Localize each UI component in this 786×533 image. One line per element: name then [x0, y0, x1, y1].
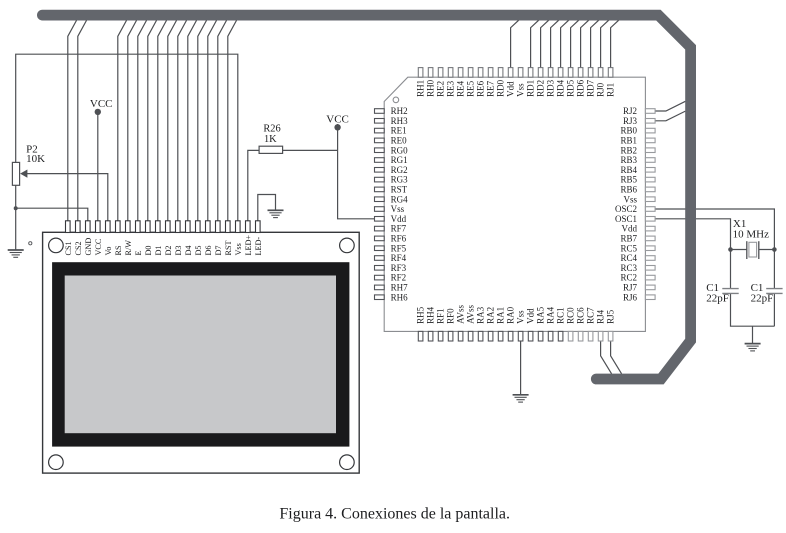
svg-text:Vdd: Vdd [526, 308, 536, 324]
svg-text:RE6: RE6 [476, 80, 486, 97]
svg-text:RB7: RB7 [620, 234, 637, 244]
svg-text:RD0: RD0 [496, 79, 506, 97]
svg-text:Vo: Vo [104, 247, 113, 256]
svg-text:R26: R26 [263, 124, 280, 135]
svg-text:RG2: RG2 [391, 165, 408, 175]
svg-text:RD7: RD7 [586, 79, 596, 97]
svg-text:RA0: RA0 [506, 306, 516, 324]
svg-text:RH3: RH3 [391, 116, 409, 126]
svg-text:RC4: RC4 [620, 253, 637, 263]
svg-text:RD4: RD4 [556, 79, 566, 97]
svg-text:Vdd: Vdd [391, 214, 407, 224]
svg-text:RF2: RF2 [391, 273, 407, 283]
svg-text:D5: D5 [194, 245, 203, 255]
svg-text:RH6: RH6 [391, 292, 409, 302]
svg-text:RB1: RB1 [620, 136, 637, 146]
svg-text:RS: RS [114, 245, 123, 255]
svg-text:RD3: RD3 [546, 79, 556, 97]
svg-text:GND: GND [84, 238, 93, 256]
svg-text:RH5: RH5 [416, 306, 426, 324]
svg-text:RE4: RE4 [456, 80, 466, 97]
svg-text:Vss: Vss [623, 194, 637, 204]
svg-text:D3: D3 [174, 245, 183, 255]
svg-text:RST: RST [224, 240, 233, 255]
svg-text:D2: D2 [164, 245, 173, 255]
svg-text:RG1: RG1 [391, 155, 408, 165]
svg-text:RE1: RE1 [391, 126, 407, 136]
svg-text:RD5: RD5 [566, 79, 576, 97]
svg-text:RJ6: RJ6 [623, 292, 638, 302]
svg-text:VCC: VCC [90, 98, 113, 110]
svg-text:Vss: Vss [234, 243, 243, 255]
svg-text:RF6: RF6 [391, 234, 407, 244]
svg-text:RJ0: RJ0 [596, 82, 606, 97]
svg-text:LED-: LED- [254, 237, 263, 256]
svg-text:OSC1: OSC1 [615, 214, 637, 224]
svg-text:10K: 10K [26, 153, 45, 165]
svg-text:RB6: RB6 [620, 185, 637, 195]
svg-text:Vss: Vss [391, 204, 405, 214]
svg-text:Figura 4. Conexiones de la pan: Figura 4. Conexiones de la pantalla. [279, 506, 510, 523]
svg-text:RJ5: RJ5 [606, 309, 616, 324]
svg-text:1K: 1K [264, 134, 277, 145]
svg-text:RST: RST [391, 185, 408, 195]
svg-text:RE0: RE0 [391, 136, 408, 146]
svg-text:RC1: RC1 [556, 307, 566, 324]
svg-text:RE3: RE3 [446, 80, 456, 97]
svg-text:OSC2: OSC2 [615, 204, 637, 214]
svg-text:RJ4: RJ4 [596, 309, 606, 324]
svg-text:Vdd: Vdd [506, 81, 516, 97]
svg-text:VCC: VCC [326, 114, 349, 126]
svg-text:D7: D7 [214, 245, 223, 255]
svg-text:Vss: Vss [516, 83, 526, 97]
svg-text:22pF: 22pF [751, 292, 774, 304]
svg-text:RD1: RD1 [526, 80, 536, 97]
svg-text:RC2: RC2 [620, 273, 637, 283]
svg-text:RC0: RC0 [566, 307, 576, 324]
svg-text:D0: D0 [144, 245, 153, 255]
svg-text:RB0: RB0 [620, 126, 637, 136]
svg-text:RA5: RA5 [536, 306, 546, 324]
svg-text:22pF: 22pF [706, 292, 729, 304]
svg-text:RF0: RF0 [446, 308, 456, 324]
svg-text:RJ7: RJ7 [623, 283, 638, 293]
svg-text:RH2: RH2 [391, 106, 408, 116]
svg-text:D1: D1 [154, 245, 163, 255]
svg-text:D4: D4 [184, 245, 193, 255]
svg-text:RE2: RE2 [436, 81, 446, 97]
svg-text:RE5: RE5 [466, 80, 476, 97]
svg-text:VCC: VCC [94, 238, 103, 255]
svg-text:E: E [134, 250, 143, 255]
svg-text:RB2: RB2 [620, 145, 637, 155]
svg-text:RA1: RA1 [496, 307, 506, 324]
svg-text:RA3: RA3 [476, 306, 486, 324]
svg-text:RF7: RF7 [391, 224, 407, 234]
svg-text:RJ3: RJ3 [623, 116, 638, 126]
svg-text:CS1: CS1 [64, 241, 73, 255]
svg-text:RB5: RB5 [620, 175, 637, 185]
svg-text:RG0: RG0 [391, 145, 409, 155]
svg-text:R/W: R/W [124, 240, 133, 256]
svg-text:RD6: RD6 [576, 79, 586, 97]
svg-text:RH7: RH7 [391, 283, 409, 293]
svg-text:RF3: RF3 [391, 263, 407, 273]
svg-text:Vss: Vss [516, 310, 526, 324]
svg-text:RJ2: RJ2 [623, 106, 637, 116]
svg-text:RH4: RH4 [426, 306, 436, 324]
svg-text:RG3: RG3 [391, 175, 409, 185]
svg-text:RA2: RA2 [486, 307, 496, 324]
svg-text:D6: D6 [204, 245, 213, 255]
svg-text:RC5: RC5 [620, 243, 637, 253]
svg-text:Vdd: Vdd [622, 224, 638, 234]
svg-text:RC6: RC6 [576, 307, 586, 324]
svg-text:RF4: RF4 [391, 253, 407, 263]
svg-text:RB4: RB4 [620, 165, 637, 175]
svg-text:RF1: RF1 [436, 308, 446, 324]
svg-text:LED+: LED+ [244, 235, 253, 256]
svg-text:RC7: RC7 [586, 307, 596, 324]
svg-text:RC3: RC3 [620, 263, 637, 273]
svg-text:RB3: RB3 [620, 155, 637, 165]
svg-text:AVss: AVss [456, 305, 466, 324]
svg-text:CS2: CS2 [74, 241, 83, 255]
svg-text:10 MHz: 10 MHz [733, 229, 769, 241]
svg-text:RF5: RF5 [391, 243, 407, 253]
svg-text:RH1: RH1 [416, 80, 426, 97]
svg-text:RH0: RH0 [426, 79, 436, 97]
svg-text:RA4: RA4 [546, 306, 556, 324]
svg-text:RD2: RD2 [536, 80, 546, 97]
svg-text:RE7: RE7 [486, 80, 496, 97]
svg-text:AVss: AVss [466, 305, 476, 324]
svg-text:RG4: RG4 [391, 194, 409, 204]
svg-text:RJ1: RJ1 [606, 83, 616, 97]
